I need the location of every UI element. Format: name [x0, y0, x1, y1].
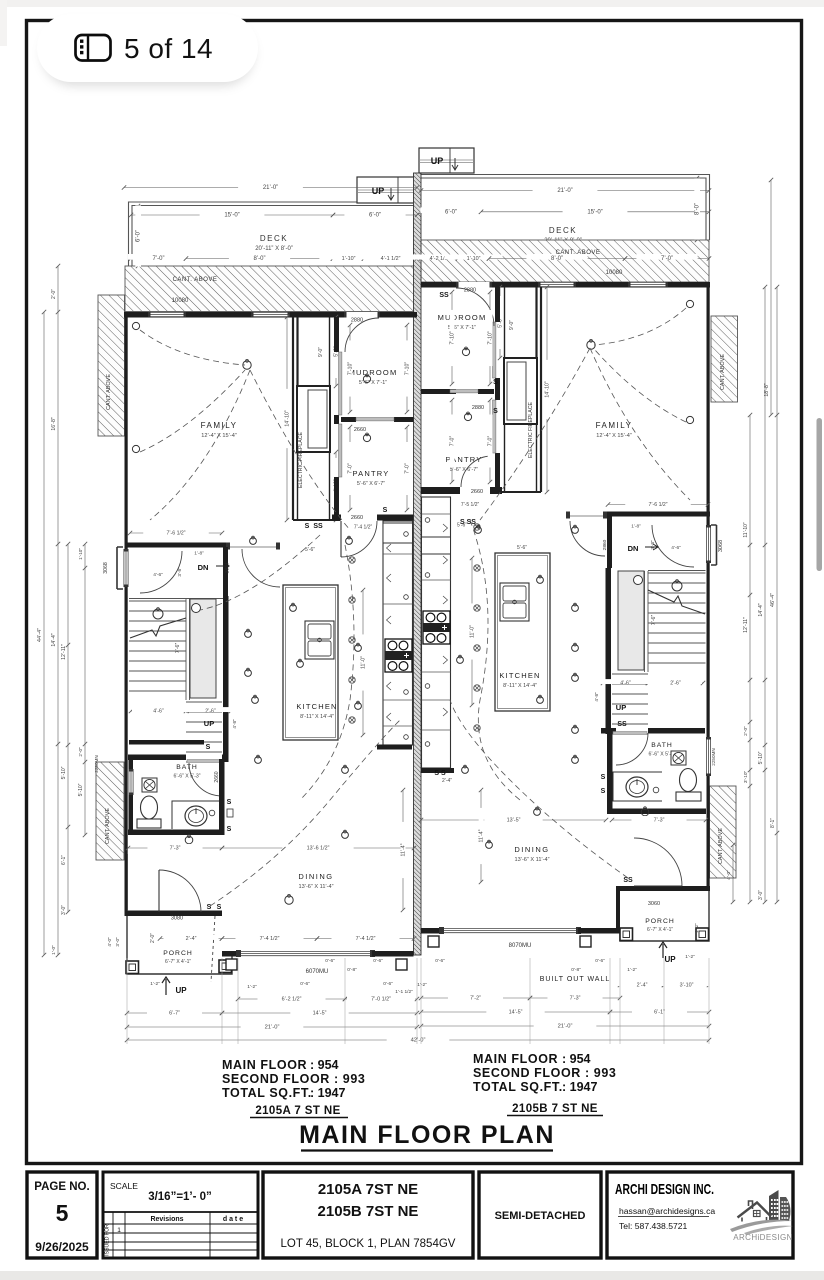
- svg-text:LOT 45, BLOCK 1, PLAN 7854GV: LOT 45, BLOCK 1, PLAN 7854GV: [281, 1238, 456, 1250]
- svg-text:S: S: [493, 379, 498, 386]
- svg-text:14’-10”: 14’-10”: [544, 381, 550, 397]
- svg-text:2’-4”: 2’-4”: [637, 983, 648, 989]
- svg-text:DINING: DINING: [514, 845, 549, 854]
- svg-text:2660: 2660: [351, 515, 363, 521]
- svg-text:S: S: [227, 826, 232, 833]
- svg-text:0’-6”: 0’-6”: [325, 958, 335, 964]
- svg-text:TOTAL SQ.FT.: TOTAL SQ.FT.: [473, 1080, 563, 1094]
- svg-text:3’-8”: 3’-8”: [177, 567, 182, 577]
- svg-text:0’-6”: 0’-6”: [595, 958, 605, 964]
- svg-text:9’-0”: 9’-0”: [318, 347, 324, 357]
- svg-text:3’-0”: 3’-0”: [758, 890, 764, 900]
- svg-text:8070MU: 8070MU: [509, 943, 532, 949]
- svg-text:13’-6” X 11’-4”: 13’-6” X 11’-4”: [514, 857, 549, 863]
- svg-text:1’-2”: 1’-2”: [694, 923, 700, 933]
- svg-text:S: S: [493, 408, 498, 415]
- svg-text:4’-6”: 4’-6”: [671, 545, 681, 551]
- svg-text:S: S: [601, 774, 606, 781]
- svg-text:7’-6”: 7’-6”: [175, 643, 181, 654]
- svg-text:5’-10”: 5’-10”: [758, 751, 764, 764]
- svg-text:2250MN: 2250MN: [711, 748, 716, 765]
- svg-text:UP: UP: [616, 703, 626, 712]
- svg-text:21’-0”: 21’-0”: [558, 1024, 573, 1030]
- svg-text:7’-0”: 7’-0”: [152, 256, 164, 262]
- svg-text:7’-10”: 7’-10”: [487, 331, 493, 345]
- svg-text:S: S: [206, 744, 211, 751]
- svg-text:14’-4”: 14’-4”: [51, 633, 57, 647]
- svg-text:Revisions: Revisions: [150, 1216, 183, 1223]
- svg-text:14’-10”: 14’-10”: [284, 410, 290, 426]
- svg-text:MUDROOM: MUDROOM: [438, 313, 487, 322]
- svg-text:7’-6 1/2”: 7’-6 1/2”: [648, 502, 667, 508]
- svg-text:d a t e: d a t e: [223, 1216, 243, 1223]
- svg-text:2’-0”: 2’-0”: [51, 289, 57, 299]
- svg-text:2880: 2880: [472, 405, 484, 411]
- svg-text:MUDROOM: MUDROOM: [349, 368, 398, 377]
- svg-text:S: S: [383, 507, 388, 514]
- svg-text:S: S: [305, 523, 310, 530]
- svg-text:7’-0 1/2”: 7’-0 1/2”: [371, 997, 391, 1003]
- svg-text:ARCHI DESIGN INC.: ARCHI DESIGN INC.: [615, 1181, 714, 1198]
- svg-text:SECOND FLOOR : 993: SECOND FLOOR : 993: [473, 1066, 616, 1080]
- svg-text:7’-4 1/2”: 7’-4 1/2”: [354, 525, 373, 531]
- svg-text:PORCH: PORCH: [645, 918, 675, 925]
- svg-text:6’-2 1/2”: 6’-2 1/2”: [282, 997, 302, 1003]
- svg-text:6’-0”: 6’-0”: [136, 230, 142, 242]
- svg-text:7’-0”: 7’-0”: [347, 463, 353, 474]
- svg-text:8’-0”: 8’-0”: [551, 256, 563, 262]
- svg-text:1’-0”: 1’-0”: [51, 945, 57, 955]
- svg-text:4’-6”: 4’-6”: [153, 708, 164, 714]
- svg-text:3080: 3080: [171, 916, 183, 922]
- svg-text:0’-6”: 0’-6”: [435, 958, 445, 964]
- svg-text:3’-0”: 3’-0”: [61, 905, 67, 915]
- svg-text:DN: DN: [198, 563, 209, 572]
- svg-text:2660: 2660: [471, 489, 483, 495]
- svg-text:3068: 3068: [103, 562, 109, 574]
- svg-text:6’-7” X 4’-1”: 6’-7” X 4’-1”: [647, 927, 673, 933]
- svg-text:CANT. ABOVE: CANT. ABOVE: [718, 828, 724, 864]
- svg-text:6’-1”: 6’-1”: [61, 855, 67, 865]
- svg-text:MAIN FLOOR PLAN: MAIN FLOOR PLAN: [299, 1121, 555, 1149]
- svg-text:TOTAL SQ.FT.: TOTAL SQ.FT.: [222, 1086, 312, 1100]
- svg-text:DECK: DECK: [549, 226, 577, 235]
- svg-text:7’-3”: 7’-3”: [654, 818, 665, 824]
- svg-text:18’-8”: 18’-8”: [764, 383, 770, 397]
- svg-text:0’-6”: 0’-6”: [300, 981, 310, 987]
- svg-text:7’-6 1/2”: 7’-6 1/2”: [166, 530, 185, 536]
- svg-text:7’-0”: 7’-0”: [449, 436, 455, 447]
- svg-text:KITCHEN: KITCHEN: [296, 702, 337, 711]
- svg-text:2105B 7 ST NE: 2105B 7 ST NE: [512, 1103, 598, 1115]
- svg-text:3’-10”: 3’-10”: [743, 770, 749, 783]
- svg-text:7’-6”: 7’-6”: [651, 615, 657, 626]
- svg-text:DECK: DECK: [260, 234, 288, 243]
- svg-text:6’-1”: 6’-1”: [654, 1010, 665, 1016]
- svg-text:7’-0”: 7’-0”: [661, 256, 673, 262]
- svg-text:14’-5”: 14’-5”: [313, 1011, 327, 1017]
- svg-text:S: S: [227, 799, 232, 806]
- svg-text:8’-0”: 8’-0”: [253, 256, 265, 262]
- svg-text:5’-10”: 5’-10”: [78, 783, 84, 796]
- svg-text:FAMILY: FAMILY: [596, 421, 633, 430]
- svg-text:2’-0”: 2’-0”: [743, 726, 749, 736]
- svg-text:12’-4” X 15’-4”: 12’-4” X 15’-4”: [596, 433, 632, 439]
- svg-text:Tel: 587.438.5721: Tel: 587.438.5721: [619, 1221, 688, 1231]
- svg-text:2’-6”: 2’-6”: [670, 680, 681, 686]
- svg-text:4’-6”: 4’-6”: [153, 572, 163, 578]
- svg-text:7’-2”: 7’-2”: [470, 996, 481, 1002]
- svg-text:4’-0”: 4’-0”: [107, 937, 112, 947]
- svg-text:1’-2”: 1’-2”: [417, 982, 427, 988]
- svg-text:9/26/2025: 9/26/2025: [35, 1240, 89, 1254]
- svg-text:5 of 14: 5 of 14: [124, 33, 213, 64]
- svg-text:SS: SS: [617, 721, 627, 728]
- svg-text:3’-0”: 3’-0”: [115, 937, 120, 947]
- svg-text:21’-0”: 21’-0”: [263, 185, 278, 191]
- svg-text:3’-8”: 3’-8”: [650, 540, 655, 550]
- svg-text:CANT. ABOVE: CANT. ABOVE: [720, 354, 726, 390]
- svg-text:5’-6”: 5’-6”: [517, 545, 527, 551]
- svg-text:9’-0”: 9’-0”: [509, 320, 515, 330]
- svg-text:1’-10”: 1’-10”: [342, 256, 356, 262]
- svg-text:0’-8”: 0’-8”: [571, 967, 581, 973]
- svg-text:1’-1 1/2”: 1’-1 1/2”: [395, 989, 413, 995]
- svg-text:15’-0”: 15’-0”: [587, 209, 602, 215]
- svg-text:8’-11” X 14’-4”: 8’-11” X 14’-4”: [300, 714, 334, 720]
- svg-text:S: S: [217, 904, 222, 911]
- svg-text:7’-4 1/2”: 7’-4 1/2”: [260, 936, 280, 942]
- svg-text:14’-5”: 14’-5”: [509, 1010, 523, 1016]
- svg-text:: 954: : 954: [310, 1058, 339, 1072]
- svg-text:1’-2”: 1’-2”: [627, 967, 637, 973]
- svg-text:5’-10”: 5’-10”: [61, 766, 67, 779]
- svg-text:: 1947: : 1947: [562, 1080, 597, 1094]
- svg-text:6’-0”: 6’-0”: [369, 213, 381, 219]
- svg-text:12’-4” X 15’-4”: 12’-4” X 15’-4”: [201, 433, 237, 439]
- svg-text:4’-8”: 4’-8”: [232, 719, 237, 729]
- svg-text:ELECTRIC FIREPLACE: ELECTRIC FIREPLACE: [528, 402, 534, 458]
- svg-text:6070MU: 6070MU: [306, 969, 329, 975]
- svg-text:SS: SS: [313, 523, 323, 530]
- svg-text:8’-1”: 8’-1”: [770, 818, 776, 828]
- svg-text:7’-0”: 7’-0”: [404, 463, 410, 474]
- svg-text:4’-0”: 4’-0”: [726, 870, 732, 880]
- svg-text:2’-0”: 2’-0”: [78, 747, 83, 757]
- svg-text:5’-6” X 6’-7”: 5’-6” X 6’-7”: [450, 467, 478, 473]
- svg-text:11’-10”: 11’-10”: [743, 522, 749, 538]
- svg-text:1’-10”: 1’-10”: [467, 256, 481, 262]
- svg-text:1’-10”: 1’-10”: [78, 548, 83, 560]
- svg-text:2’-4”: 2’-4”: [442, 778, 452, 784]
- svg-text:BATH: BATH: [176, 764, 198, 771]
- svg-text:KITCHEN: KITCHEN: [499, 671, 540, 680]
- svg-text:2’-4”: 2’-4”: [186, 936, 197, 942]
- svg-text:6’-7” X 4’-1”: 6’-7” X 4’-1”: [165, 959, 191, 965]
- svg-text:12’-11”: 12’-11”: [61, 644, 67, 660]
- svg-text:5’-6”: 5’-6”: [457, 523, 467, 529]
- svg-text:2’-6”: 2’-6”: [205, 708, 216, 714]
- svg-text:SS: SS: [439, 292, 449, 299]
- svg-text:MAIN FLOOR: MAIN FLOOR: [222, 1058, 307, 1072]
- svg-text:PANTRY: PANTRY: [353, 469, 390, 478]
- svg-text:11’-0”: 11’-0”: [469, 625, 475, 638]
- svg-text:13’-6 1/2”: 13’-6 1/2”: [307, 846, 330, 852]
- svg-text:PAGE NO.: PAGE NO.: [34, 1181, 89, 1193]
- svg-text:21’-0”: 21’-0”: [265, 1025, 280, 1031]
- svg-text:0’-6”: 0’-6”: [383, 981, 393, 987]
- svg-text:: 954: : 954: [562, 1052, 591, 1066]
- svg-text:S S: S S: [434, 770, 446, 777]
- svg-text:11’-4”: 11’-4”: [400, 843, 406, 856]
- svg-text:SS: SS: [623, 877, 633, 884]
- svg-text:5’-6” X 6’-7”: 5’-6” X 6’-7”: [357, 481, 385, 487]
- svg-text:2105A 7ST NE: 2105A 7ST NE: [318, 1181, 418, 1198]
- svg-text:4’-8”: 4’-8”: [594, 692, 599, 702]
- svg-text:1’-8”: 1’-8”: [194, 551, 204, 557]
- svg-text:ARCHiDESIGN: ARCHiDESIGN: [733, 1233, 793, 1242]
- svg-text:1’-2”: 1’-2”: [150, 981, 160, 987]
- svg-text:7’-0”: 7’-0”: [487, 436, 493, 447]
- svg-text:10080: 10080: [172, 298, 189, 304]
- svg-text:SEMI-DETACHED: SEMI-DETACHED: [495, 1210, 586, 1222]
- svg-text:5’-6” X 7’-1”: 5’-6” X 7’-1”: [359, 380, 387, 386]
- svg-text:CANT. ABOVE: CANT. ABOVE: [173, 277, 218, 283]
- svg-text:42’-0”: 42’-0”: [411, 1038, 426, 1044]
- svg-text:0’-8”: 0’-8”: [347, 967, 357, 973]
- svg-text:6’-7”: 6’-7”: [169, 1011, 180, 1017]
- svg-text:hassan@archidesigns.ca: hassan@archidesigns.ca: [619, 1206, 715, 1216]
- svg-text:UP: UP: [431, 156, 444, 166]
- svg-text:2’-0”: 2’-0”: [150, 933, 156, 943]
- svg-text:0’-6”: 0’-6”: [373, 958, 383, 964]
- svg-text:FAMILY: FAMILY: [201, 421, 238, 430]
- svg-text:S: S: [601, 788, 606, 795]
- svg-text:3/16”=1’- 0”: 3/16”=1’- 0”: [148, 1191, 212, 1203]
- svg-text:6’-6” X 5’-3”: 6’-6” X 5’-3”: [173, 774, 200, 780]
- svg-text:: 1947: : 1947: [310, 1086, 345, 1100]
- svg-text:1’-2”: 1’-2”: [247, 984, 257, 990]
- svg-text:6’-0”: 6’-0”: [445, 209, 457, 215]
- svg-text:5’-6”: 5’-6”: [305, 547, 315, 553]
- svg-text:SECOND FLOOR : 993: SECOND FLOOR : 993: [222, 1072, 365, 1086]
- svg-text:10080: 10080: [606, 270, 623, 276]
- svg-text:8’-11” X 14’-4”: 8’-11” X 14’-4”: [503, 683, 537, 689]
- svg-text:3’-10”: 3’-10”: [680, 983, 694, 989]
- svg-text:1: 1: [117, 1227, 121, 1234]
- svg-text:8’-0”: 8’-0”: [695, 203, 701, 215]
- svg-text:DN: DN: [628, 544, 639, 553]
- svg-text:CANT. ABOVE: CANT. ABOVE: [105, 808, 111, 844]
- svg-text:ISSUED FOR: ISSUED FOR: [105, 1224, 111, 1256]
- svg-text:7’-3”: 7’-3”: [570, 996, 581, 1002]
- svg-text:12’-11”: 12’-11”: [743, 617, 749, 633]
- svg-text:2250MN: 2250MN: [94, 755, 99, 772]
- svg-text:DINING: DINING: [298, 872, 333, 881]
- svg-text:21’-0”: 21’-0”: [557, 188, 572, 194]
- svg-text:UP: UP: [664, 955, 676, 964]
- svg-text:BATH: BATH: [651, 742, 673, 749]
- svg-text:4’-1 1/2”: 4’-1 1/2”: [381, 256, 401, 262]
- svg-text:2860: 2860: [602, 539, 608, 550]
- svg-text:7’-4 1/2”: 7’-4 1/2”: [356, 936, 376, 942]
- svg-text:CANT. ABOVE: CANT. ABOVE: [106, 374, 112, 410]
- svg-text:20’-11” X 8’-0”: 20’-11” X 8’-0”: [255, 246, 293, 252]
- svg-text:15’-0”: 15’-0”: [224, 213, 239, 219]
- svg-text:ELECTRIC FIREPLACE: ELECTRIC FIREPLACE: [298, 432, 304, 488]
- svg-text:BUILT OUT WALL: BUILT OUT WALL: [540, 976, 611, 983]
- svg-text:UP: UP: [175, 986, 187, 995]
- svg-text:1’-8”: 1’-8”: [631, 524, 641, 530]
- svg-text:16’-8”: 16’-8”: [51, 417, 57, 431]
- svg-text:13’-5”: 13’-5”: [507, 818, 521, 824]
- svg-text:7’-10”: 7’-10”: [404, 362, 410, 376]
- svg-text:7’-5 1/2”: 7’-5 1/2”: [461, 502, 480, 508]
- svg-text:7’-10”: 7’-10”: [347, 362, 353, 376]
- svg-text:SCALE: SCALE: [110, 1181, 138, 1191]
- svg-text:2105A 7 ST NE: 2105A 7 ST NE: [255, 1105, 340, 1117]
- svg-text:UP: UP: [204, 719, 214, 728]
- svg-text:11’-0”: 11’-0”: [360, 656, 366, 669]
- svg-text:MAIN FLOOR: MAIN FLOOR: [473, 1052, 558, 1066]
- svg-text:46’-4”: 46’-4”: [770, 593, 776, 607]
- svg-text:14’-4”: 14’-4”: [758, 603, 764, 617]
- svg-text:7’-3”: 7’-3”: [170, 846, 181, 852]
- svg-text:13’-6” X 11’-4”: 13’-6” X 11’-4”: [298, 884, 333, 890]
- svg-text:2660: 2660: [354, 427, 366, 433]
- svg-text:2105B 7ST NE: 2105B 7ST NE: [318, 1203, 419, 1220]
- svg-text:44’-4”: 44’-4”: [37, 628, 43, 642]
- svg-text:1’-2”: 1’-2”: [685, 954, 695, 960]
- svg-text:5: 5: [56, 1200, 69, 1226]
- svg-text:3060: 3060: [648, 901, 660, 907]
- svg-text:3068: 3068: [718, 540, 724, 552]
- svg-text:PORCH: PORCH: [163, 950, 193, 957]
- svg-text:7’-10”: 7’-10”: [449, 331, 455, 345]
- svg-text:4’-6”: 4’-6”: [620, 680, 631, 686]
- svg-text:11’-4”: 11’-4”: [478, 829, 484, 842]
